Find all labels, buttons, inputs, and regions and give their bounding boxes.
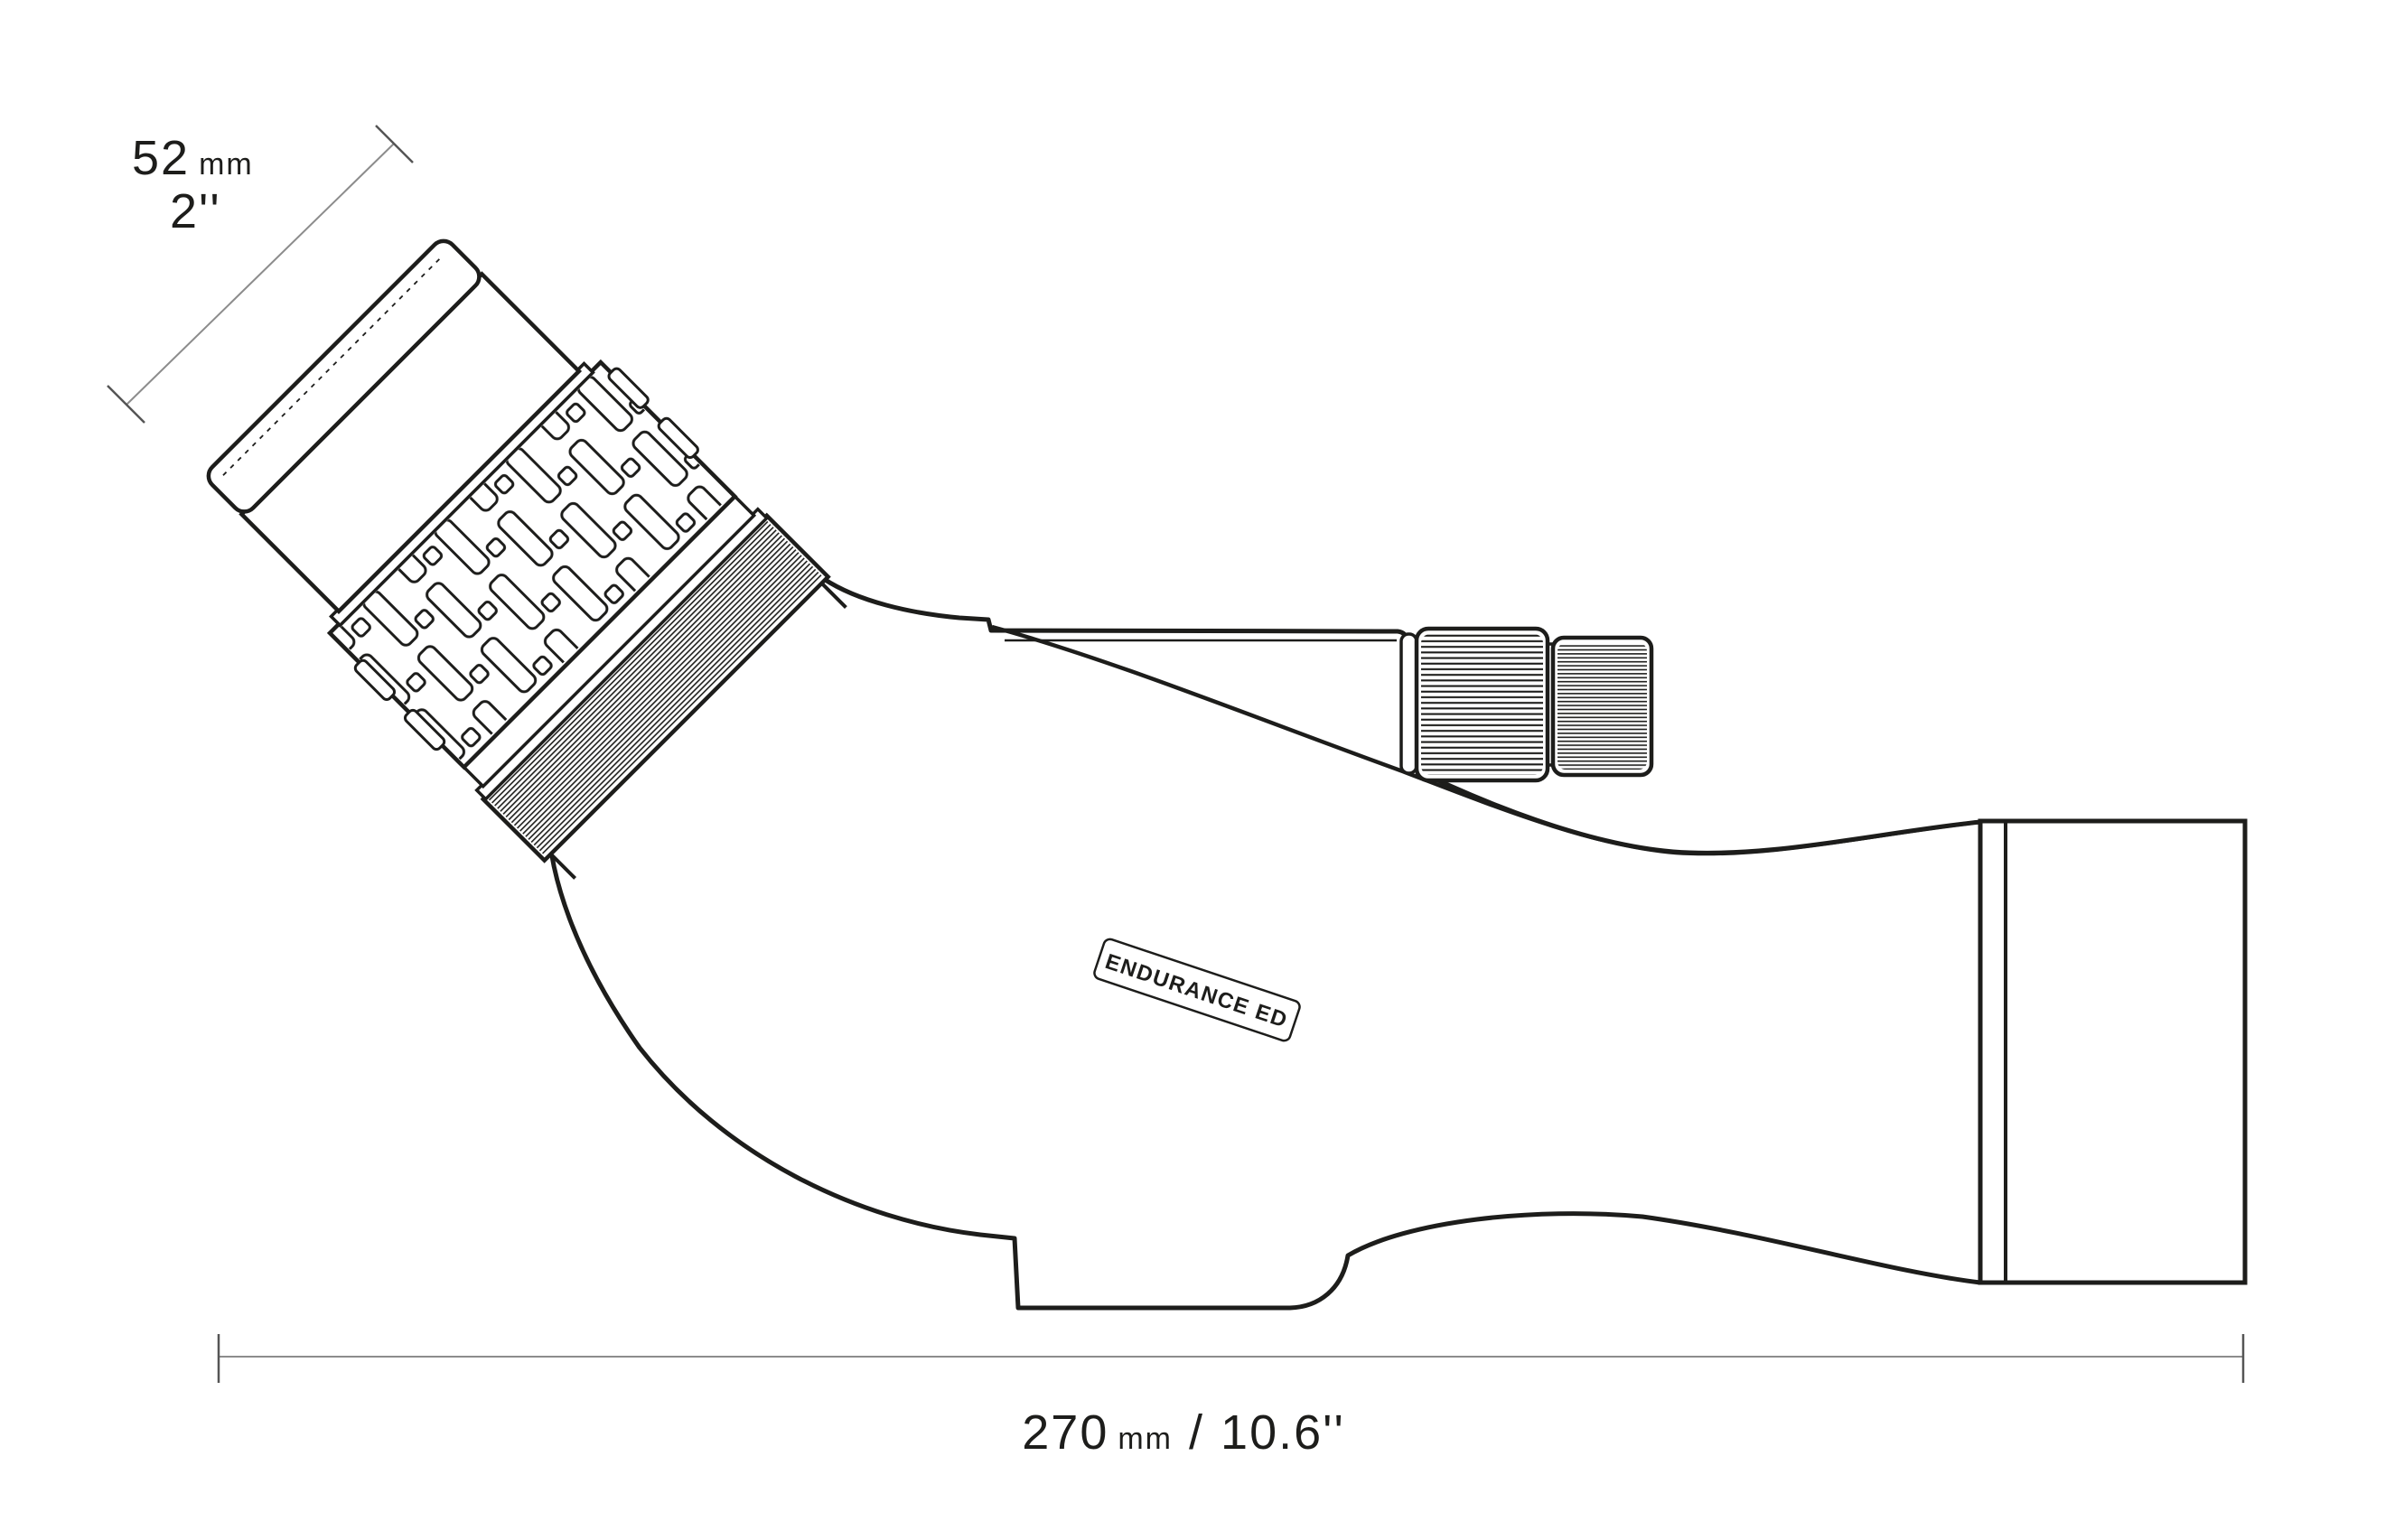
eyepiece-dimension-label-imperial: 2'' <box>170 184 221 238</box>
length-dimension: 270mm/10.6'' <box>219 1334 2243 1460</box>
focus-knob-fine <box>1553 638 1651 775</box>
spotting-scope-technical-drawing: ENDURANCE ED 52mm 2'' 270mm/10.6'' <box>0 0 2404 1540</box>
focus-knob-assembly <box>1401 629 1651 780</box>
focus-knob-coarse-knurl <box>1421 634 1543 775</box>
focus-knob-collar <box>1401 634 1417 773</box>
focus-knob-coarse <box>1417 629 1548 780</box>
objective-barrel-body <box>1980 821 2245 1283</box>
drawing-canvas: ENDURANCE ED 52mm 2'' 270mm/10.6'' <box>0 0 2404 1540</box>
objective-barrel <box>1980 821 2245 1283</box>
focus-knob-fine-knurl <box>1557 643 1647 770</box>
length-dimension-label: 270mm/10.6'' <box>1022 1405 1345 1460</box>
eyepiece-dimension-label-metric: 52mm <box>132 131 254 185</box>
